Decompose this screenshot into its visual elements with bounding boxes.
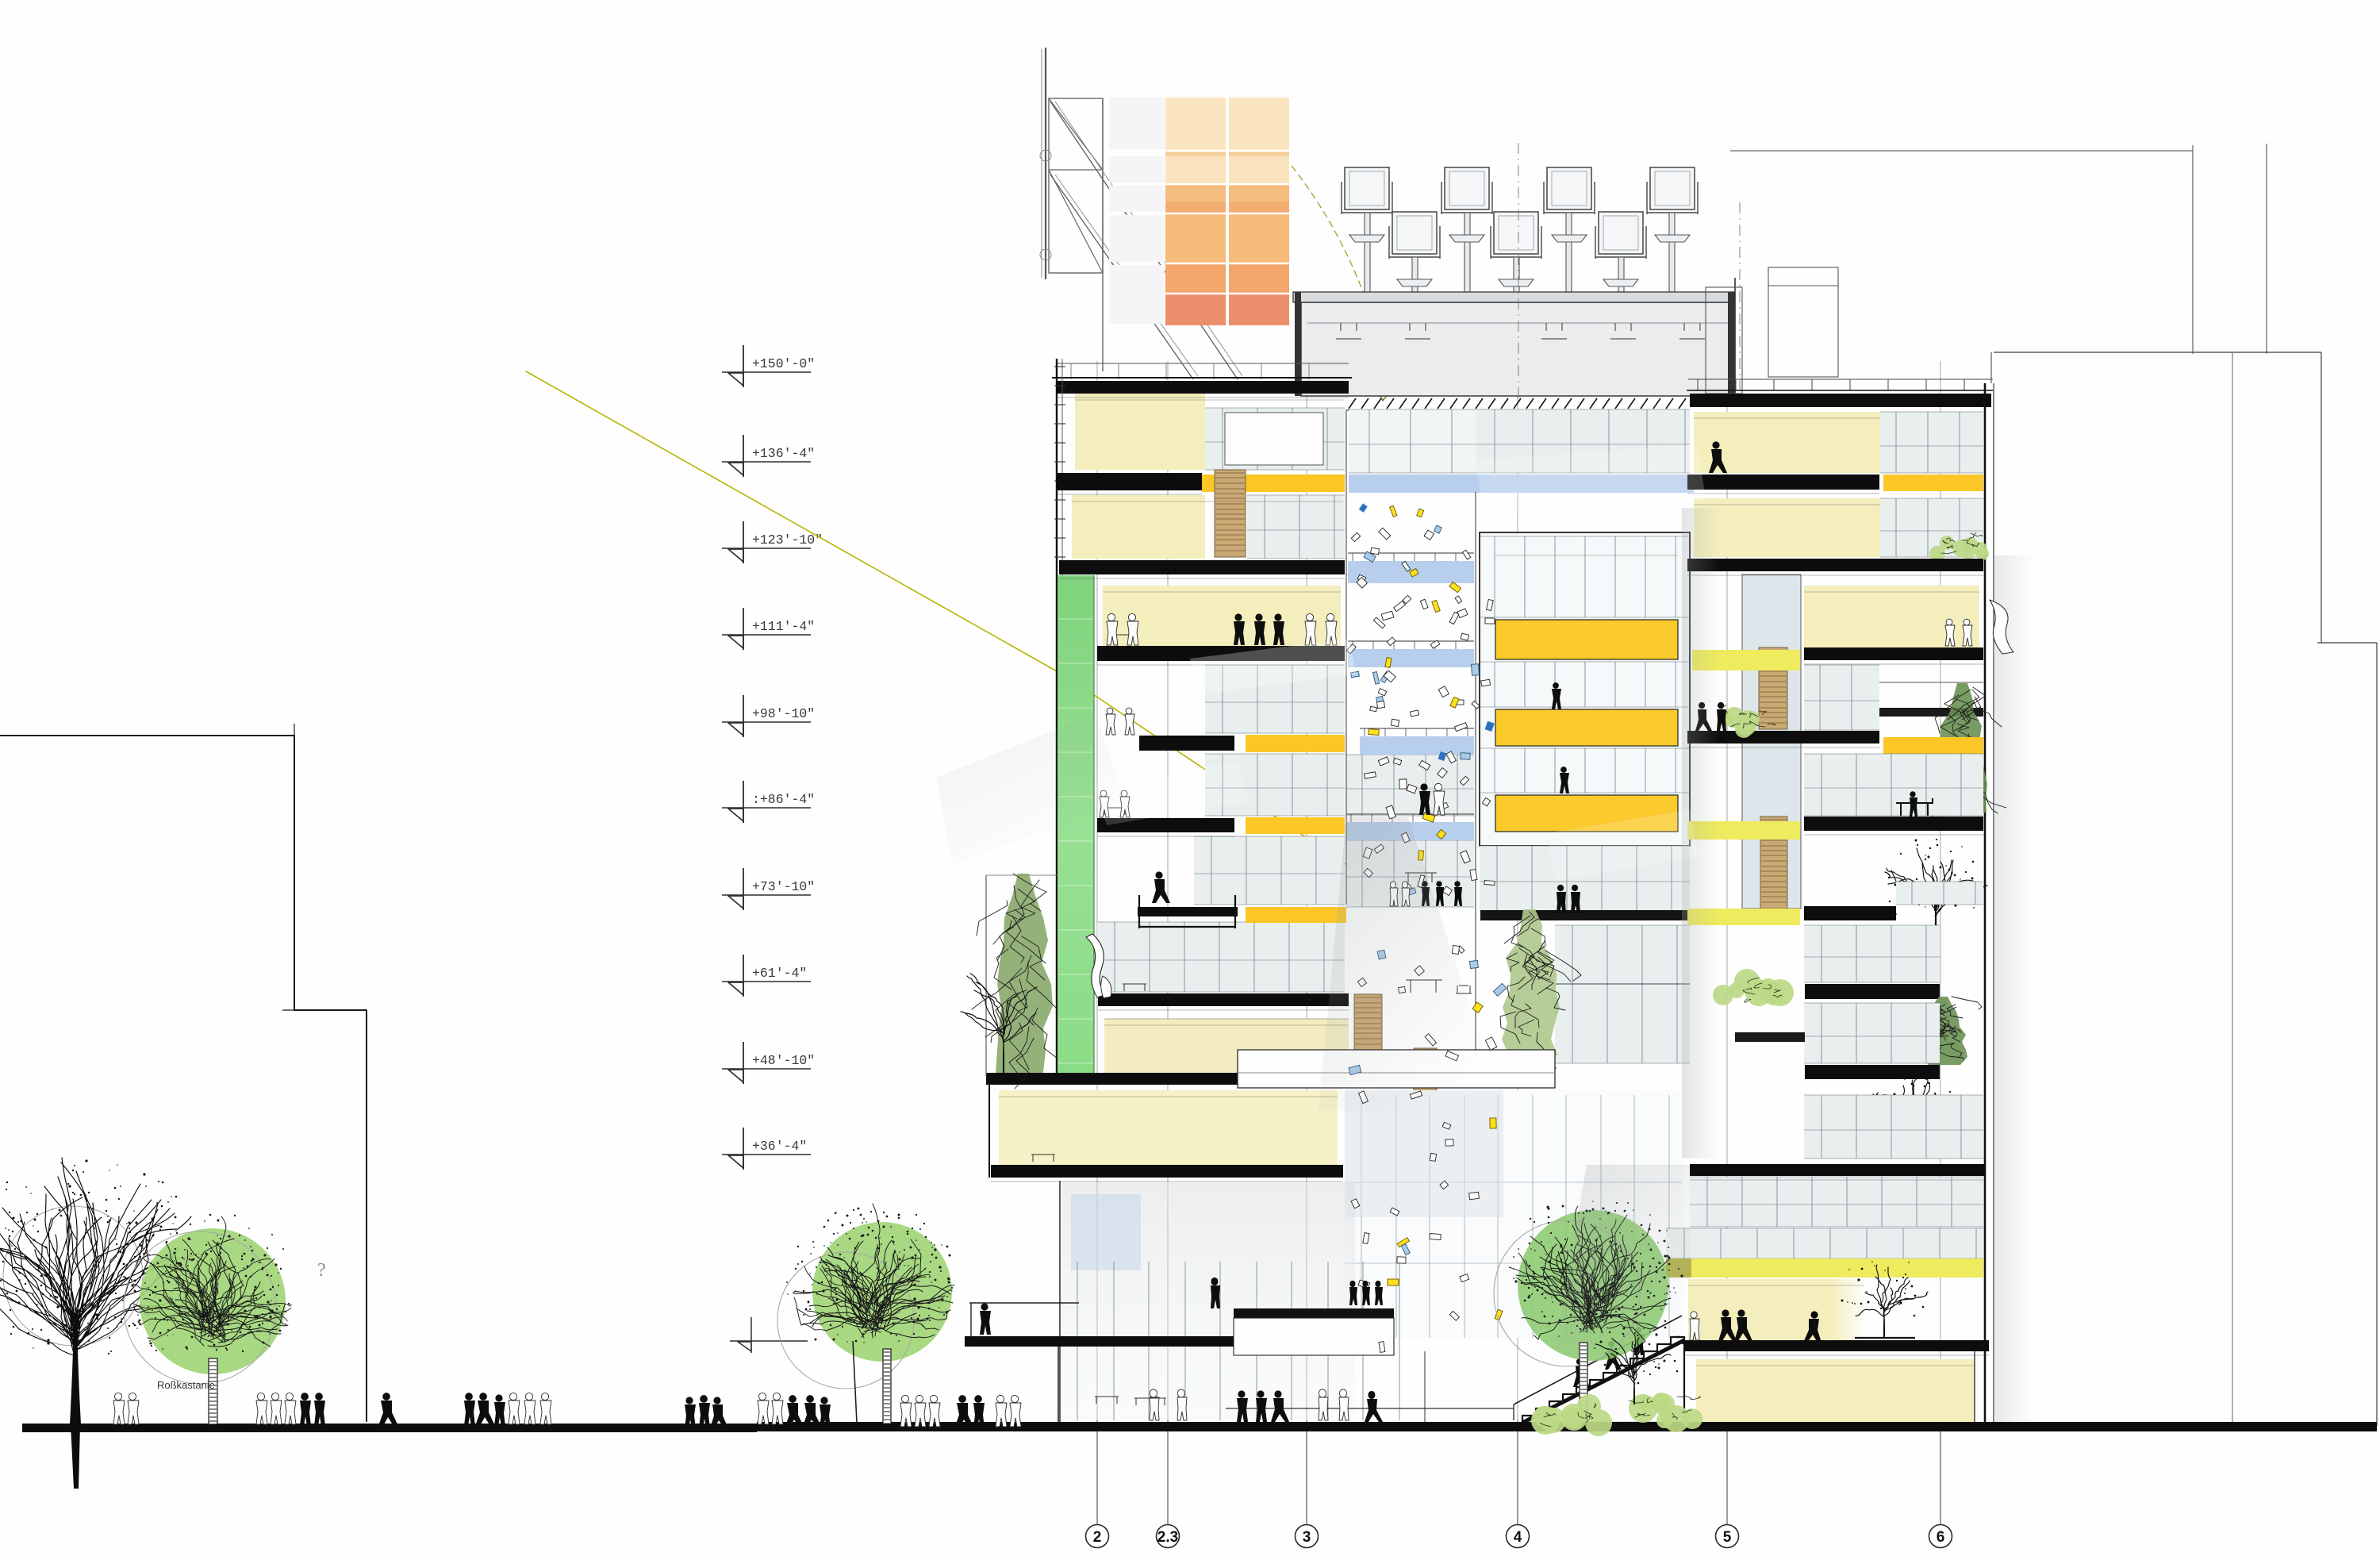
- svg-text:2.3: 2.3: [1157, 1529, 1178, 1546]
- svg-text:+98'-10": +98'-10": [752, 706, 815, 721]
- svg-text:+48'-10": +48'-10": [752, 1053, 815, 1068]
- svg-text:+123'-10": +123'-10": [752, 532, 823, 548]
- svg-text:+111'-4": +111'-4": [752, 619, 815, 634]
- svg-text:+61'-4": +61'-4": [752, 966, 807, 981]
- svg-text:+150'-0": +150'-0": [752, 356, 815, 371]
- svg-text:6: 6: [1937, 1529, 1945, 1546]
- svg-text:+36'-4": +36'-4": [752, 1139, 807, 1154]
- svg-text:?: ?: [317, 1260, 326, 1281]
- svg-text:3: 3: [1303, 1529, 1311, 1546]
- svg-text:+136'-4": +136'-4": [752, 446, 815, 461]
- svg-text:+73'-10": +73'-10": [752, 879, 815, 894]
- svg-text:2: 2: [1093, 1529, 1102, 1546]
- svg-text:5: 5: [1723, 1529, 1732, 1546]
- svg-text:4: 4: [1514, 1529, 1522, 1546]
- svg-text::+86'-4": :+86'-4": [752, 792, 815, 807]
- svg-text:Roßkastanie: Roßkastanie: [157, 1379, 215, 1391]
